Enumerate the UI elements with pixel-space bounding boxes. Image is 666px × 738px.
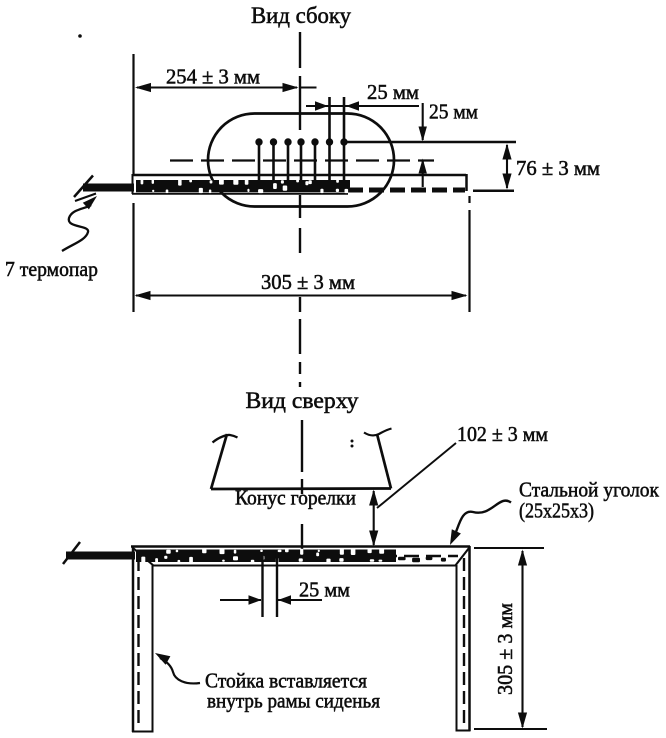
svg-text:254 ± 3 мм: 254 ± 3 мм	[166, 65, 260, 89]
svg-text:102 ± 3 мм: 102 ± 3 мм	[457, 422, 548, 446]
svg-text:305 ± 3 мм: 305 ± 3 мм	[493, 603, 517, 695]
svg-text:305 ± 3 мм: 305 ± 3 мм	[261, 270, 355, 294]
svg-text:Конус горелки: Конус горелки	[235, 486, 356, 510]
svg-text:Вид сверху: Вид сверху	[246, 388, 359, 414]
svg-text:76 ± 3 мм: 76 ± 3 мм	[516, 156, 600, 180]
svg-text:25 мм: 25 мм	[429, 100, 478, 124]
svg-text:Вид сбоку: Вид сбоку	[251, 3, 351, 29]
svg-text:внутрь рамы сиденья: внутрь рамы сиденья	[207, 689, 380, 713]
svg-text:25 мм: 25 мм	[367, 80, 419, 104]
svg-text:(25х25х3): (25х25х3)	[519, 499, 594, 523]
svg-text:25 мм: 25 мм	[299, 578, 350, 602]
svg-text:7 термопар: 7 термопар	[5, 257, 98, 281]
